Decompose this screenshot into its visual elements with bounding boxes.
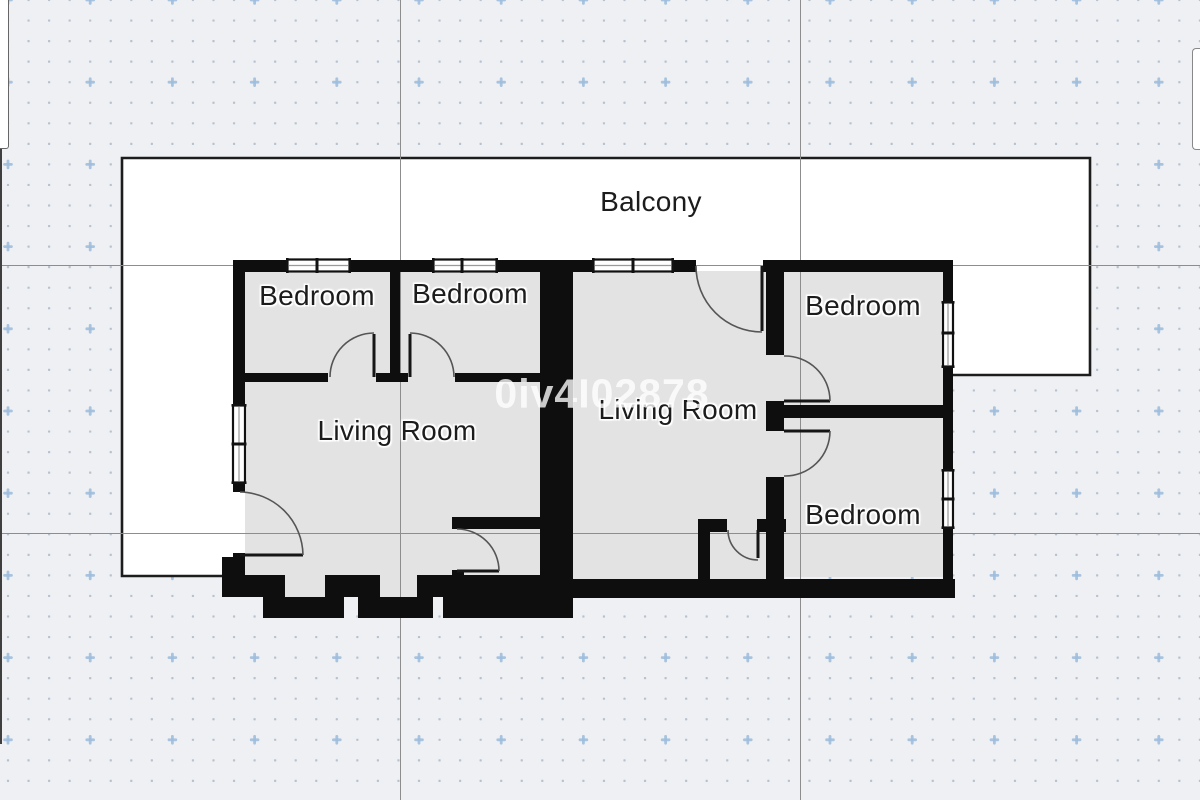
wall-right-vertical-top[interactable] (766, 272, 784, 355)
wall-left-mid[interactable] (233, 483, 245, 492)
label-bedroom-bottom-right: Bedroom (805, 499, 921, 531)
window-divider (232, 443, 247, 446)
window-bedroom-top-right[interactable] (942, 301, 955, 368)
window-divider (942, 332, 955, 335)
label-living-room-left: Living Room (318, 415, 477, 447)
window-cap (942, 365, 955, 368)
right-scroll-tab[interactable] (1192, 48, 1200, 150)
wall-right-a[interactable] (943, 260, 953, 302)
window-cap (592, 258, 595, 273)
window-divider (316, 258, 319, 273)
wall-left-upper[interactable] (233, 260, 245, 405)
balcony-left-leg (122, 158, 246, 576)
balcony-right-leg (952, 158, 1090, 375)
window-divider (942, 498, 955, 501)
window-divider (461, 258, 464, 273)
left-scroll-tab[interactable] (0, 0, 9, 149)
wall-crenel-a1[interactable] (222, 575, 285, 597)
wall-top-e[interactable] (763, 260, 952, 272)
wall-bedroom-divider[interactable] (390, 272, 400, 382)
wall-vestibule-right-stub[interactable] (757, 519, 786, 532)
window-cap (232, 481, 247, 484)
label-balcony: Balcony (600, 186, 702, 218)
floorplan-canvas[interactable]: Balcony Bedroom Bedroom Living Room Livi… (0, 0, 1200, 800)
watermark-text: 0iv4I02878 (494, 371, 709, 418)
label-bedroom-top-left: Bedroom (259, 280, 375, 312)
window-cap (942, 469, 955, 472)
wall-crenel-stub[interactable] (222, 557, 240, 577)
wall-crenel-b2[interactable] (358, 597, 433, 618)
window-cap (942, 526, 955, 529)
window-living-room-left[interactable] (232, 404, 247, 484)
wall-bottom-band[interactable] (573, 579, 955, 598)
wall-bedrooms-bottom-b[interactable] (376, 373, 408, 382)
wall-right-b[interactable] (943, 367, 953, 470)
label-bedroom-top-middle: Bedroom (412, 278, 528, 310)
window-divider (632, 258, 635, 273)
wall-right-bedrooms-divider[interactable] (766, 405, 943, 418)
wall-crenel-b3[interactable] (443, 597, 573, 618)
window-cap (286, 258, 289, 273)
floor-notch-2 (380, 577, 417, 597)
floor-notch-1 (285, 577, 325, 597)
window-cap (671, 258, 674, 273)
wall-crenel-a3[interactable] (417, 575, 545, 597)
wall-bedrooms-bottom-a[interactable] (245, 373, 328, 382)
window-cap (942, 301, 955, 304)
wall-crenel-a2[interactable] (325, 575, 380, 597)
window-cap (348, 258, 351, 273)
window-cap (495, 258, 498, 273)
window-bedroom-top-left[interactable] (286, 258, 351, 273)
window-cap (232, 404, 247, 407)
window-cap (432, 258, 435, 273)
wall-vestibule-flange[interactable] (698, 519, 727, 532)
wall-crenel-b1[interactable] (263, 597, 344, 618)
floor-bedroom-bottom-right[interactable] (766, 418, 943, 577)
label-bedroom-top-right: Bedroom (805, 290, 921, 322)
wall-top-d[interactable] (673, 260, 696, 272)
wall-alcove[interactable] (452, 517, 540, 529)
wall-center-main[interactable] (540, 260, 573, 610)
window-bedroom-top-middle[interactable] (432, 258, 498, 273)
wall-top-b[interactable] (350, 260, 433, 272)
window-bedroom-bottom-right[interactable] (942, 469, 955, 529)
window-living-room-middle[interactable] (592, 258, 674, 273)
